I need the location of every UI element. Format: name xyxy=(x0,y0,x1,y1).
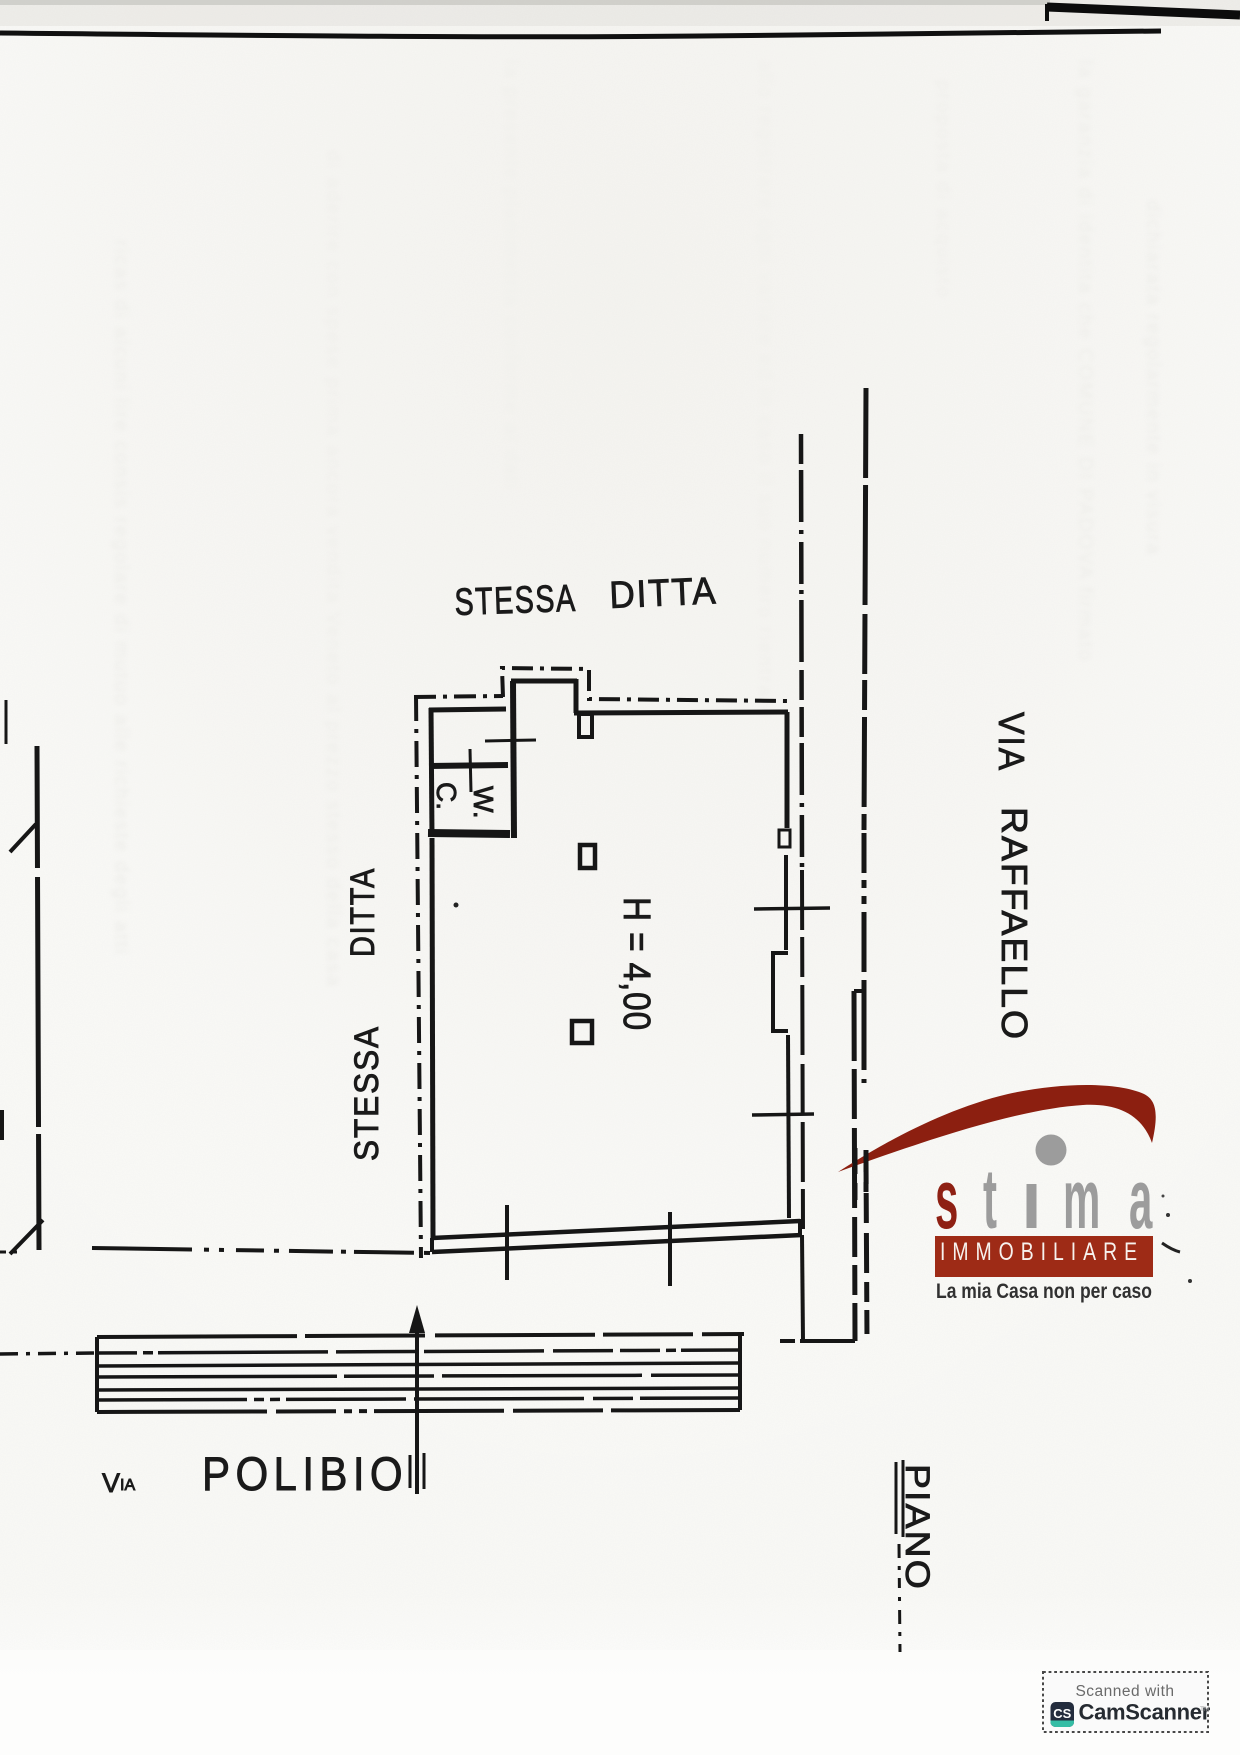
svg-text:DITTA: DITTA xyxy=(344,867,382,957)
svg-text:DITTA: DITTA xyxy=(609,570,719,617)
svg-text:t: t xyxy=(983,1153,997,1247)
svg-text:STESSA: STESSA xyxy=(454,578,577,624)
svg-text:H = 4,00: H = 4,00 xyxy=(615,897,657,1031)
svg-text:s: s xyxy=(935,1153,958,1247)
svg-text:W.: W. xyxy=(468,786,499,819)
svg-text:a: a xyxy=(1129,1153,1153,1247)
svg-text:TM: TM xyxy=(1200,1706,1209,1713)
svg-text:CamScanner: CamScanner xyxy=(1079,1700,1211,1725)
svg-text:VIA: VIA xyxy=(991,712,1032,772)
svg-text:RAFFAELLO: RAFFAELLO xyxy=(994,807,1035,1041)
svg-text:PIANO: PIANO xyxy=(898,1464,936,1591)
svg-text:C.: C. xyxy=(431,782,462,810)
svg-text:m: m xyxy=(1063,1153,1100,1247)
svg-text:STESSA: STESSA xyxy=(348,1025,386,1161)
svg-text:POLIBIO: POLIBIO xyxy=(202,1447,408,1500)
svg-text:IMMOBILIARE: IMMOBILIARE xyxy=(940,1238,1144,1266)
svg-text:Scanned with: Scanned with xyxy=(1075,1683,1174,1700)
svg-text:La mia Casa non per caso: La mia Casa non per caso xyxy=(936,1280,1152,1303)
svg-text:CS: CS xyxy=(1053,1706,1071,1721)
